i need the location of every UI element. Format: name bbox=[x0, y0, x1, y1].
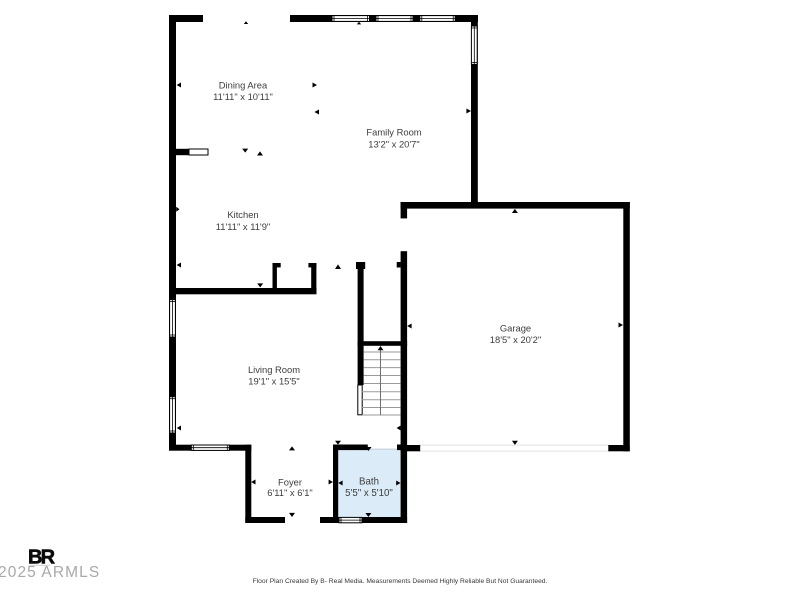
svg-text:2025 ARMLS: 2025 ARMLS bbox=[0, 564, 100, 581]
svg-text:Family Room: Family Room bbox=[366, 126, 421, 137]
svg-text:13'2" x 20'7": 13'2" x 20'7" bbox=[368, 138, 419, 149]
svg-text:18'5" x 20'2": 18'5" x 20'2" bbox=[490, 334, 541, 345]
svg-text:11'11" x 10'11": 11'11" x 10'11" bbox=[213, 91, 273, 102]
svg-text:5'5" x 5'10": 5'5" x 5'10" bbox=[345, 488, 393, 499]
svg-text:Dining Area: Dining Area bbox=[219, 80, 268, 91]
svg-text:Living Room: Living Room bbox=[248, 364, 300, 375]
svg-text:19'1" x 15'5": 19'1" x 15'5" bbox=[248, 375, 299, 386]
svg-text:6'11" x 6'1": 6'11" x 6'1" bbox=[267, 487, 313, 498]
svg-text:Garage: Garage bbox=[500, 322, 531, 333]
svg-text:Foyer: Foyer bbox=[278, 476, 302, 487]
svg-text:Kitchen: Kitchen bbox=[227, 209, 258, 220]
svg-text:11'11" x 11'9": 11'11" x 11'9" bbox=[216, 221, 271, 232]
svg-text:Floor Plan Created By B- Real: Floor Plan Created By B- Real Media. Mea… bbox=[253, 578, 548, 585]
svg-text:Bath: Bath bbox=[359, 477, 379, 488]
